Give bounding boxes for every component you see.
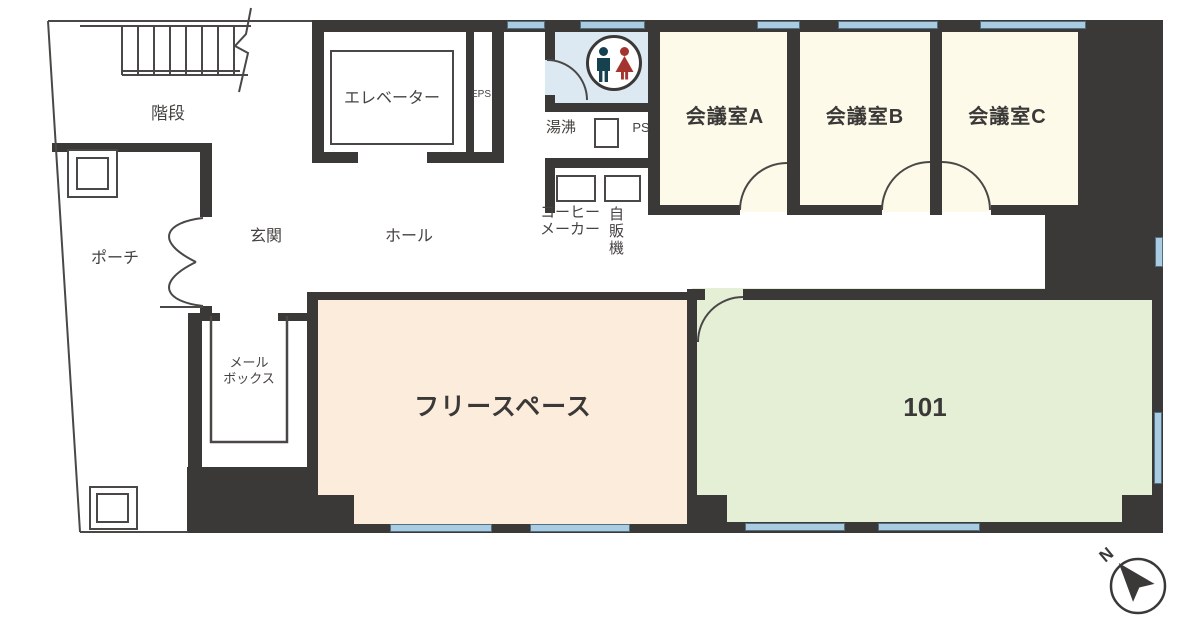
meeting-a-door-arc bbox=[740, 163, 787, 210]
entrance-double-door bbox=[160, 218, 203, 307]
meeting-room-b-label: 会議室B bbox=[795, 105, 935, 129]
room-101-label: 101 bbox=[862, 392, 988, 423]
free-space-label: フリースペース bbox=[362, 392, 644, 422]
floor-plan: N 階段 エレベーター EPS 湯沸 PS コーヒー メーカー 自販機 会議室A… bbox=[0, 0, 1200, 634]
room-101-door-arc bbox=[698, 297, 743, 342]
line-art-layer: N bbox=[0, 0, 1200, 634]
pillar-outline bbox=[68, 150, 137, 529]
north-arrow-icon: N bbox=[1096, 544, 1165, 613]
exterior-boundary bbox=[48, 21, 80, 532]
hall-label: ホール bbox=[376, 227, 442, 246]
vending-machine-label: 自販機 bbox=[606, 195, 624, 267]
stairs-label: 階段 bbox=[128, 104, 208, 124]
ps-label: PS bbox=[629, 120, 653, 136]
meeting-c-door-arc bbox=[942, 162, 990, 210]
porch-label: ポーチ bbox=[84, 249, 146, 268]
meeting-b-door-arc bbox=[882, 162, 930, 210]
restroom-circle bbox=[588, 37, 641, 90]
kettle-label: 湯沸 bbox=[540, 119, 582, 137]
mailbox-label: メール ボックス bbox=[212, 355, 286, 386]
compass-north-label: N bbox=[1096, 544, 1118, 566]
meeting-room-c-label: 会議室C bbox=[935, 105, 1080, 129]
toilet-door-arc bbox=[547, 60, 587, 100]
elevator-label: エレベーター bbox=[320, 89, 464, 108]
coffee-maker-label: コーヒー メーカー bbox=[531, 204, 609, 239]
restroom-sign bbox=[588, 37, 641, 90]
meeting-room-a-label: 会議室A bbox=[655, 105, 795, 129]
eps-label: EPS bbox=[468, 89, 494, 101]
entrance-label: 玄関 bbox=[236, 227, 296, 246]
